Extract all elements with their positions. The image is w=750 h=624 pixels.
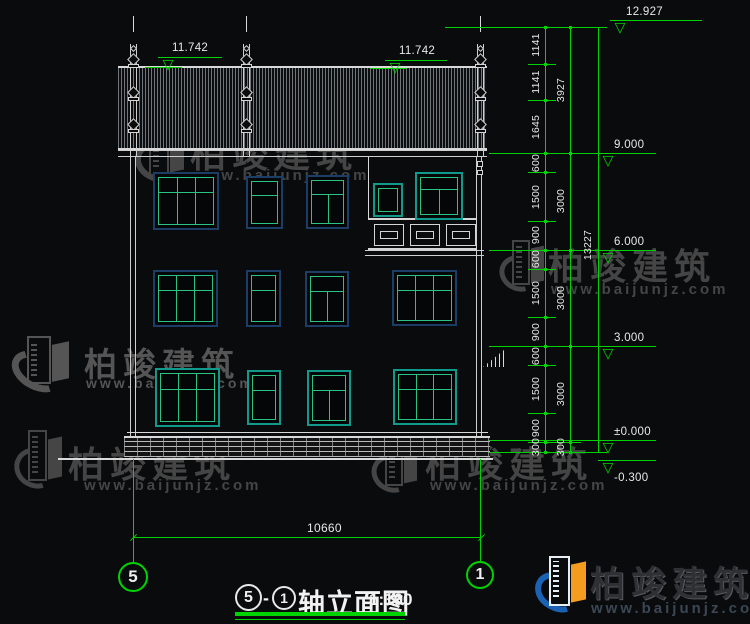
dim-tick	[553, 346, 581, 347]
dim-segment-label: 1500	[530, 184, 542, 208]
dim-segment-label: 900	[530, 419, 542, 437]
window-mullion	[196, 374, 197, 421]
level-marker-label: ±0.000	[614, 426, 651, 438]
dim-tick-dot	[569, 441, 572, 444]
watermark-url: www.baijunjz.com	[430, 477, 607, 494]
axis-line	[480, 459, 481, 561]
level-marker-triangle: ▽	[612, 22, 628, 32]
logo-wing	[52, 341, 69, 382]
dim-tick-dot	[544, 364, 547, 367]
level-marker-label: -0.300	[614, 472, 648, 484]
window-transom	[252, 195, 277, 196]
level-marker-label: 3.000	[614, 332, 644, 344]
finial-collar	[475, 64, 486, 68]
dim-tick	[589, 27, 607, 28]
axis-bubble: 5	[118, 562, 148, 592]
dim-tick	[528, 27, 556, 28]
dim-segment-label: 3000	[555, 286, 567, 310]
window-inner	[158, 275, 213, 322]
dim-segment-label: 900	[530, 322, 542, 340]
dim-tick	[528, 365, 556, 366]
logo-tower-windows	[553, 561, 559, 597]
dim-segment-label: 1500	[530, 281, 542, 305]
logo-tower	[512, 240, 530, 285]
window-mullion	[433, 375, 434, 419]
wall-right	[476, 157, 482, 437]
window	[155, 368, 220, 427]
eave-marker-subline	[145, 67, 182, 68]
dim-tick-dot	[544, 171, 547, 174]
dim-tick	[528, 100, 556, 101]
dim-chain-top-line	[445, 27, 606, 28]
dim-tick-dot	[544, 345, 547, 348]
dim-tick	[528, 172, 556, 173]
dim-tick-dot	[544, 412, 547, 415]
dim-tick	[553, 153, 581, 154]
title-scale: 1:100	[369, 590, 412, 610]
level-marker-triangle: ▽	[600, 462, 616, 472]
window-inner	[398, 374, 452, 420]
eave-marker-triangle: ▽	[387, 62, 403, 72]
window-mullion	[176, 276, 177, 321]
dim-chain-line	[570, 27, 571, 452]
window-mullion	[416, 375, 417, 419]
window-inner	[378, 188, 398, 212]
finial-collar	[241, 64, 252, 68]
dim-tick	[528, 221, 556, 222]
logo-tower-windows	[32, 435, 38, 473]
width-dim-line	[133, 537, 481, 538]
dim-tick	[528, 413, 556, 414]
window-mullion	[433, 276, 434, 320]
dim-tick-dot	[544, 220, 547, 223]
site-logo-url: www.baijunjz.com	[591, 600, 750, 617]
side-canopy	[483, 350, 504, 367]
window-mullion	[415, 276, 416, 320]
window	[392, 270, 457, 326]
finial-collar	[475, 97, 486, 101]
dim-chain-line	[598, 27, 599, 452]
dim-segment-label: 600	[530, 250, 542, 268]
window-inner	[312, 375, 346, 421]
dim-tick-dot	[569, 345, 572, 348]
watermark-url: www.baijunjz.com	[84, 477, 261, 494]
window-inner	[251, 181, 278, 224]
logo-tower	[27, 336, 51, 384]
dim-segment-label: 600	[530, 347, 542, 365]
brand-building-icon	[14, 336, 72, 396]
window	[393, 369, 457, 425]
balcony-slab	[365, 250, 484, 256]
dim-segment-label: 900	[530, 226, 542, 244]
finial-collar	[128, 64, 139, 68]
window	[153, 270, 218, 327]
level-marker-label: 9.000	[614, 139, 644, 151]
finial-antenna	[246, 16, 247, 32]
window-inner	[252, 375, 276, 420]
level-marker-triangle: ▽	[600, 348, 616, 358]
wall-mark	[477, 170, 483, 175]
window-mullion	[328, 194, 329, 223]
dim-tick	[528, 64, 556, 65]
window-inner	[158, 177, 214, 225]
finial-antenna	[480, 16, 481, 32]
window-mullion	[329, 390, 330, 420]
title-underline	[235, 612, 405, 616]
eave-marker-label: 11.742	[399, 45, 435, 57]
brand-building-icon	[538, 556, 588, 618]
window	[246, 176, 283, 229]
dim-segment-label: 1645	[530, 115, 542, 139]
window-transom	[159, 290, 212, 291]
width-dim-label: 10660	[307, 521, 342, 535]
finial-collar	[475, 129, 486, 133]
window	[153, 172, 219, 230]
railing-panel-inner	[452, 231, 470, 239]
window-mullion	[194, 276, 195, 321]
dim-tick-dot	[544, 441, 547, 444]
dim-segment-label: 3000	[555, 189, 567, 213]
railing-panel	[410, 224, 440, 246]
dim-tick-dot	[544, 63, 547, 66]
window-inner	[311, 180, 344, 224]
railing-panel	[446, 224, 476, 246]
dim-tick	[553, 250, 581, 251]
dim-segment-label: 300	[530, 438, 542, 456]
title-separator: -	[263, 588, 269, 609]
window	[247, 370, 281, 425]
ground-line	[58, 458, 493, 460]
title-block: 5 - 1 轴立面图 1:100	[233, 580, 443, 624]
level-marker-triangle: ▽	[600, 442, 616, 452]
window	[415, 172, 463, 220]
window-transom	[159, 192, 213, 193]
dim-segment-label: 300	[555, 438, 567, 456]
dim-segment-label: 3000	[555, 382, 567, 406]
window-transom	[253, 390, 275, 391]
window-inner	[397, 275, 452, 321]
level-marker-triangle: ▽	[600, 155, 616, 165]
watermark-url: www.baijunjz.com	[551, 281, 728, 298]
railing-panel-inner	[416, 231, 434, 239]
dim-tick-dot	[544, 268, 547, 271]
window-mullion	[177, 178, 178, 224]
drawing-canvas: 柏竣建筑www.baijunjz.com柏竣建筑www.baijunjz.com…	[0, 0, 750, 624]
dim-tick-dot	[544, 316, 547, 319]
finial-collar	[128, 97, 139, 101]
logo-tower	[28, 430, 47, 481]
level-marker-triangle: ▽	[600, 252, 616, 262]
title-underline-2	[235, 619, 405, 620]
wall-mark	[477, 161, 483, 167]
window	[373, 183, 403, 217]
dim-tick-dot	[544, 249, 547, 252]
brand-building-icon	[18, 430, 64, 494]
window-transom	[252, 290, 275, 291]
balcony-divider	[368, 157, 369, 219]
window-inner	[420, 177, 458, 215]
roof-band	[118, 66, 487, 150]
railing-panel-inner	[380, 231, 398, 239]
dim-tick	[528, 269, 556, 270]
dim-tick	[528, 317, 556, 318]
window	[307, 370, 351, 426]
dim-total-label: 13227	[582, 230, 594, 260]
dim-chain-line	[545, 27, 546, 452]
window	[305, 271, 349, 327]
finial-collar	[241, 97, 252, 101]
dim-tick-dot	[569, 451, 572, 454]
dim-segment-label: 1141	[530, 70, 542, 93]
dim-tick-dot	[544, 99, 547, 102]
window-mullion	[439, 189, 440, 214]
window-mullion	[178, 374, 179, 421]
window	[246, 270, 281, 327]
level-marker-label: 6.000	[614, 236, 644, 248]
level-marker-label: 12.927	[626, 6, 663, 18]
window-inner	[310, 276, 344, 322]
dim-tick-dot	[569, 26, 572, 29]
dim-tick-dot	[569, 152, 572, 155]
finial-antenna	[133, 16, 134, 32]
window-transom	[399, 389, 451, 390]
window-inner	[160, 373, 215, 422]
finial-collar	[128, 129, 139, 133]
railing-panel	[374, 224, 404, 246]
wall-left	[130, 157, 136, 437]
base-trim-line	[127, 432, 488, 433]
eave-marker-subline	[370, 68, 407, 69]
eave-marker-label: 11.742	[172, 42, 208, 54]
window-mullion	[195, 178, 196, 224]
dim-tick-dot	[544, 26, 547, 29]
balcony-railing	[368, 218, 477, 250]
dim-tick	[589, 452, 607, 453]
dim-segment-label: 3927	[555, 78, 567, 102]
dim-tick-dot	[569, 249, 572, 252]
axis-line	[133, 459, 134, 562]
window-inner	[251, 275, 276, 322]
logo-tower-windows	[31, 341, 37, 376]
brick-base	[124, 436, 490, 457]
window-transom	[161, 389, 214, 390]
window-transom	[398, 290, 451, 291]
eave-band	[118, 150, 487, 157]
logo-wing	[571, 562, 586, 604]
dim-tick-dot	[544, 451, 547, 454]
logo-tower	[549, 556, 570, 606]
title-axis-start-bubble: 5	[235, 584, 262, 611]
window-mullion	[327, 291, 328, 321]
dim-segment-label: 600	[530, 154, 542, 172]
window	[306, 175, 349, 229]
axis-bubble: 1	[466, 561, 494, 589]
dim-tick-dot	[544, 152, 547, 155]
dim-segment-label: 1141	[530, 34, 542, 57]
dim-tick	[553, 27, 581, 28]
title-axis-end-bubble: 1	[272, 586, 296, 610]
dim-segment-label: 1500	[530, 377, 542, 401]
finial-collar	[241, 129, 252, 133]
